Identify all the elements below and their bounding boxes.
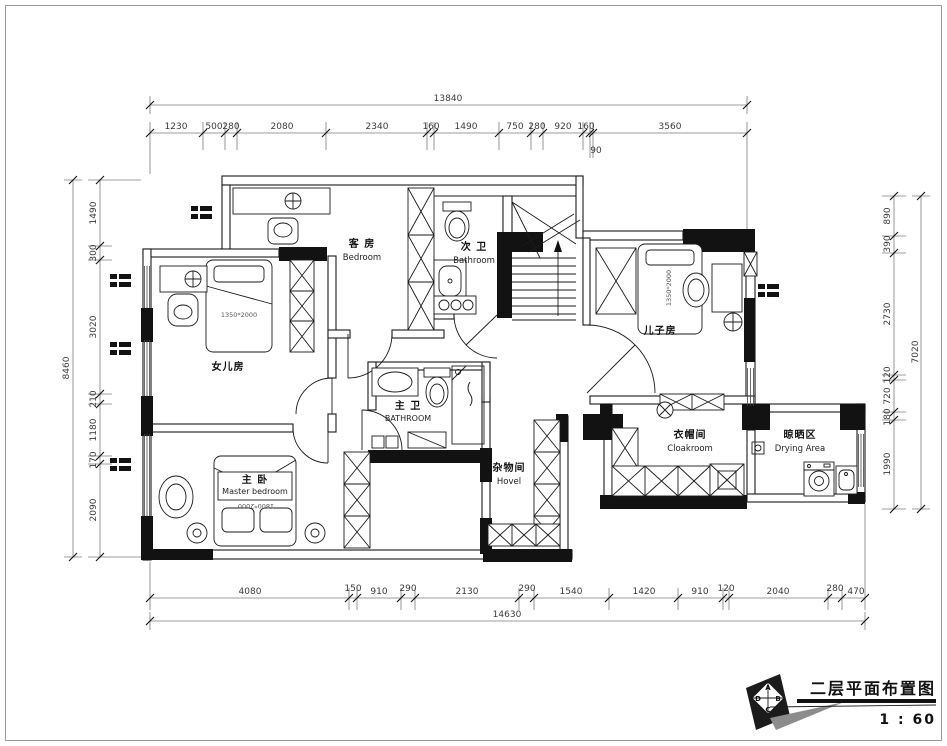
door-bath2 [454,315,497,358]
desk [712,264,742,312]
dim-total: 8460 [62,356,72,379]
logo-letter: A [765,684,771,692]
dim-value: 1540 [560,587,583,597]
dim-value: 2040 [767,587,790,597]
room-label-daughter: 女儿房 [212,360,245,373]
right-dimension-chain: 7020 890 390 2730 120 720 180 1990 [882,192,930,513]
dim-total: 7020 [911,340,921,363]
toilet-icon [443,202,471,211]
dim-value: 280 [222,122,239,132]
dim-value: 120 [717,584,734,594]
door-master [293,428,328,463]
dim-value: 1420 [633,587,656,597]
guest-room-furniture [233,188,330,244]
shower [452,366,484,444]
counter [434,296,476,314]
dim-value: 920 [554,122,571,132]
bed-size-label: 1350*2000 [665,270,673,306]
dim-value: 280 [826,584,843,594]
door-daughter [296,378,332,414]
room-label-master-bath-en: BATHROOM [385,414,431,423]
floor-plan-canvas: 13840 1230 500 280 2080 2340 160 1490 75… [0,0,947,746]
dim-value: 720 [883,387,893,404]
dim-value: 500 [205,122,222,132]
dim-value: 290 [399,584,416,594]
dim-value: 210 [89,390,99,407]
room-label-drying-en: Drying Area [775,444,825,454]
room-label-bath2: 次 卫 [461,240,487,253]
toilet-icon [424,368,450,377]
dim-value: 1490 [89,201,99,224]
dim-value: 910 [691,587,708,597]
room-label-bath2-en: Bathroom [453,256,495,266]
bed [206,260,272,352]
dim-total: 14630 [493,610,522,620]
nightstand [305,523,325,543]
desk [233,188,330,214]
drawing-scale: 1 : 60 [879,712,936,728]
dim-value: 120 [883,366,893,383]
dim-total: 13840 [434,94,463,104]
dim-value: 1490 [455,122,478,132]
dim-value: 390 [883,235,893,252]
bed-size-label: 1800*2000 [238,502,274,510]
dim-value: 890 [883,207,893,224]
room-label-drying: 晾晒区 [784,428,817,441]
dim-value: 2730 [883,302,893,325]
dim-value: 3020 [89,315,99,338]
dim-value: 170 [89,451,99,468]
dim-value: 4080 [239,587,262,597]
stair-direction-arrow [554,240,562,252]
bed [214,456,296,546]
dim-value: 280 [528,122,545,132]
room-label-son: 儿子房 [643,324,677,337]
floor-plan-page: 13840 1230 500 280 2080 2340 160 1490 75… [0,0,947,746]
dim-value: 3560 [659,122,682,132]
room-label-guest: 客 房 [348,237,375,250]
dim-value: 1990 [883,452,893,475]
title-block: A D B C 二层平面布置图 1 : 60 [746,674,936,730]
dim-value: 910 [370,587,387,597]
dim-value: 180 [883,408,893,425]
room-label-storage-en: Hovel [497,477,521,487]
armchair [168,294,198,326]
cloakroom-fixtures [657,402,673,418]
chair [268,218,298,244]
master-bath-fixtures [372,366,484,448]
logo-letter: D [755,695,761,703]
dim-value: 2080 [271,122,294,132]
dim-value: 90 [590,146,602,156]
room-label-cloak-en: Cloakroom [667,444,713,454]
dim-value: 1180 [89,418,99,441]
left-dimension-chain: 8460 1490 300 3020 210 1180 170 2090 [62,176,141,561]
room-label-guest-en: Bedroom [343,253,381,263]
dim-value: 300 [89,244,99,261]
room-label-storage: 杂物间 [493,461,526,474]
logo-letter: B [775,695,780,703]
drawing-title: 二层平面布置图 [810,679,936,698]
dim-value: 160 [422,122,439,132]
chair [683,273,709,307]
drying-area-fixtures [804,462,857,496]
dim-value: 290 [518,584,535,594]
logo-letter: C [765,706,770,714]
nightstand [187,523,207,543]
dim-value: 150 [344,584,361,594]
dim-value: 2130 [456,587,479,597]
room-label-cloak: 衣帽间 [674,428,707,441]
staircase [512,202,580,320]
dim-value: 2340 [366,122,389,132]
dim-value: 1230 [165,122,188,132]
master-room-furniture [159,456,325,546]
room-label-master-en: Master bedroom [222,487,288,496]
dim-value: 2090 [89,498,99,521]
room-label-master-bath: 主 卫 [395,399,421,412]
dim-value: 160 [577,122,594,132]
room-label-master: 主 卧 [242,473,268,486]
dim-value: 750 [506,122,523,132]
armchair [159,476,193,518]
dim-value: 470 [847,587,864,597]
bed-size-label: 1350*2000 [221,311,257,319]
daughter-room-furniture [160,260,272,352]
